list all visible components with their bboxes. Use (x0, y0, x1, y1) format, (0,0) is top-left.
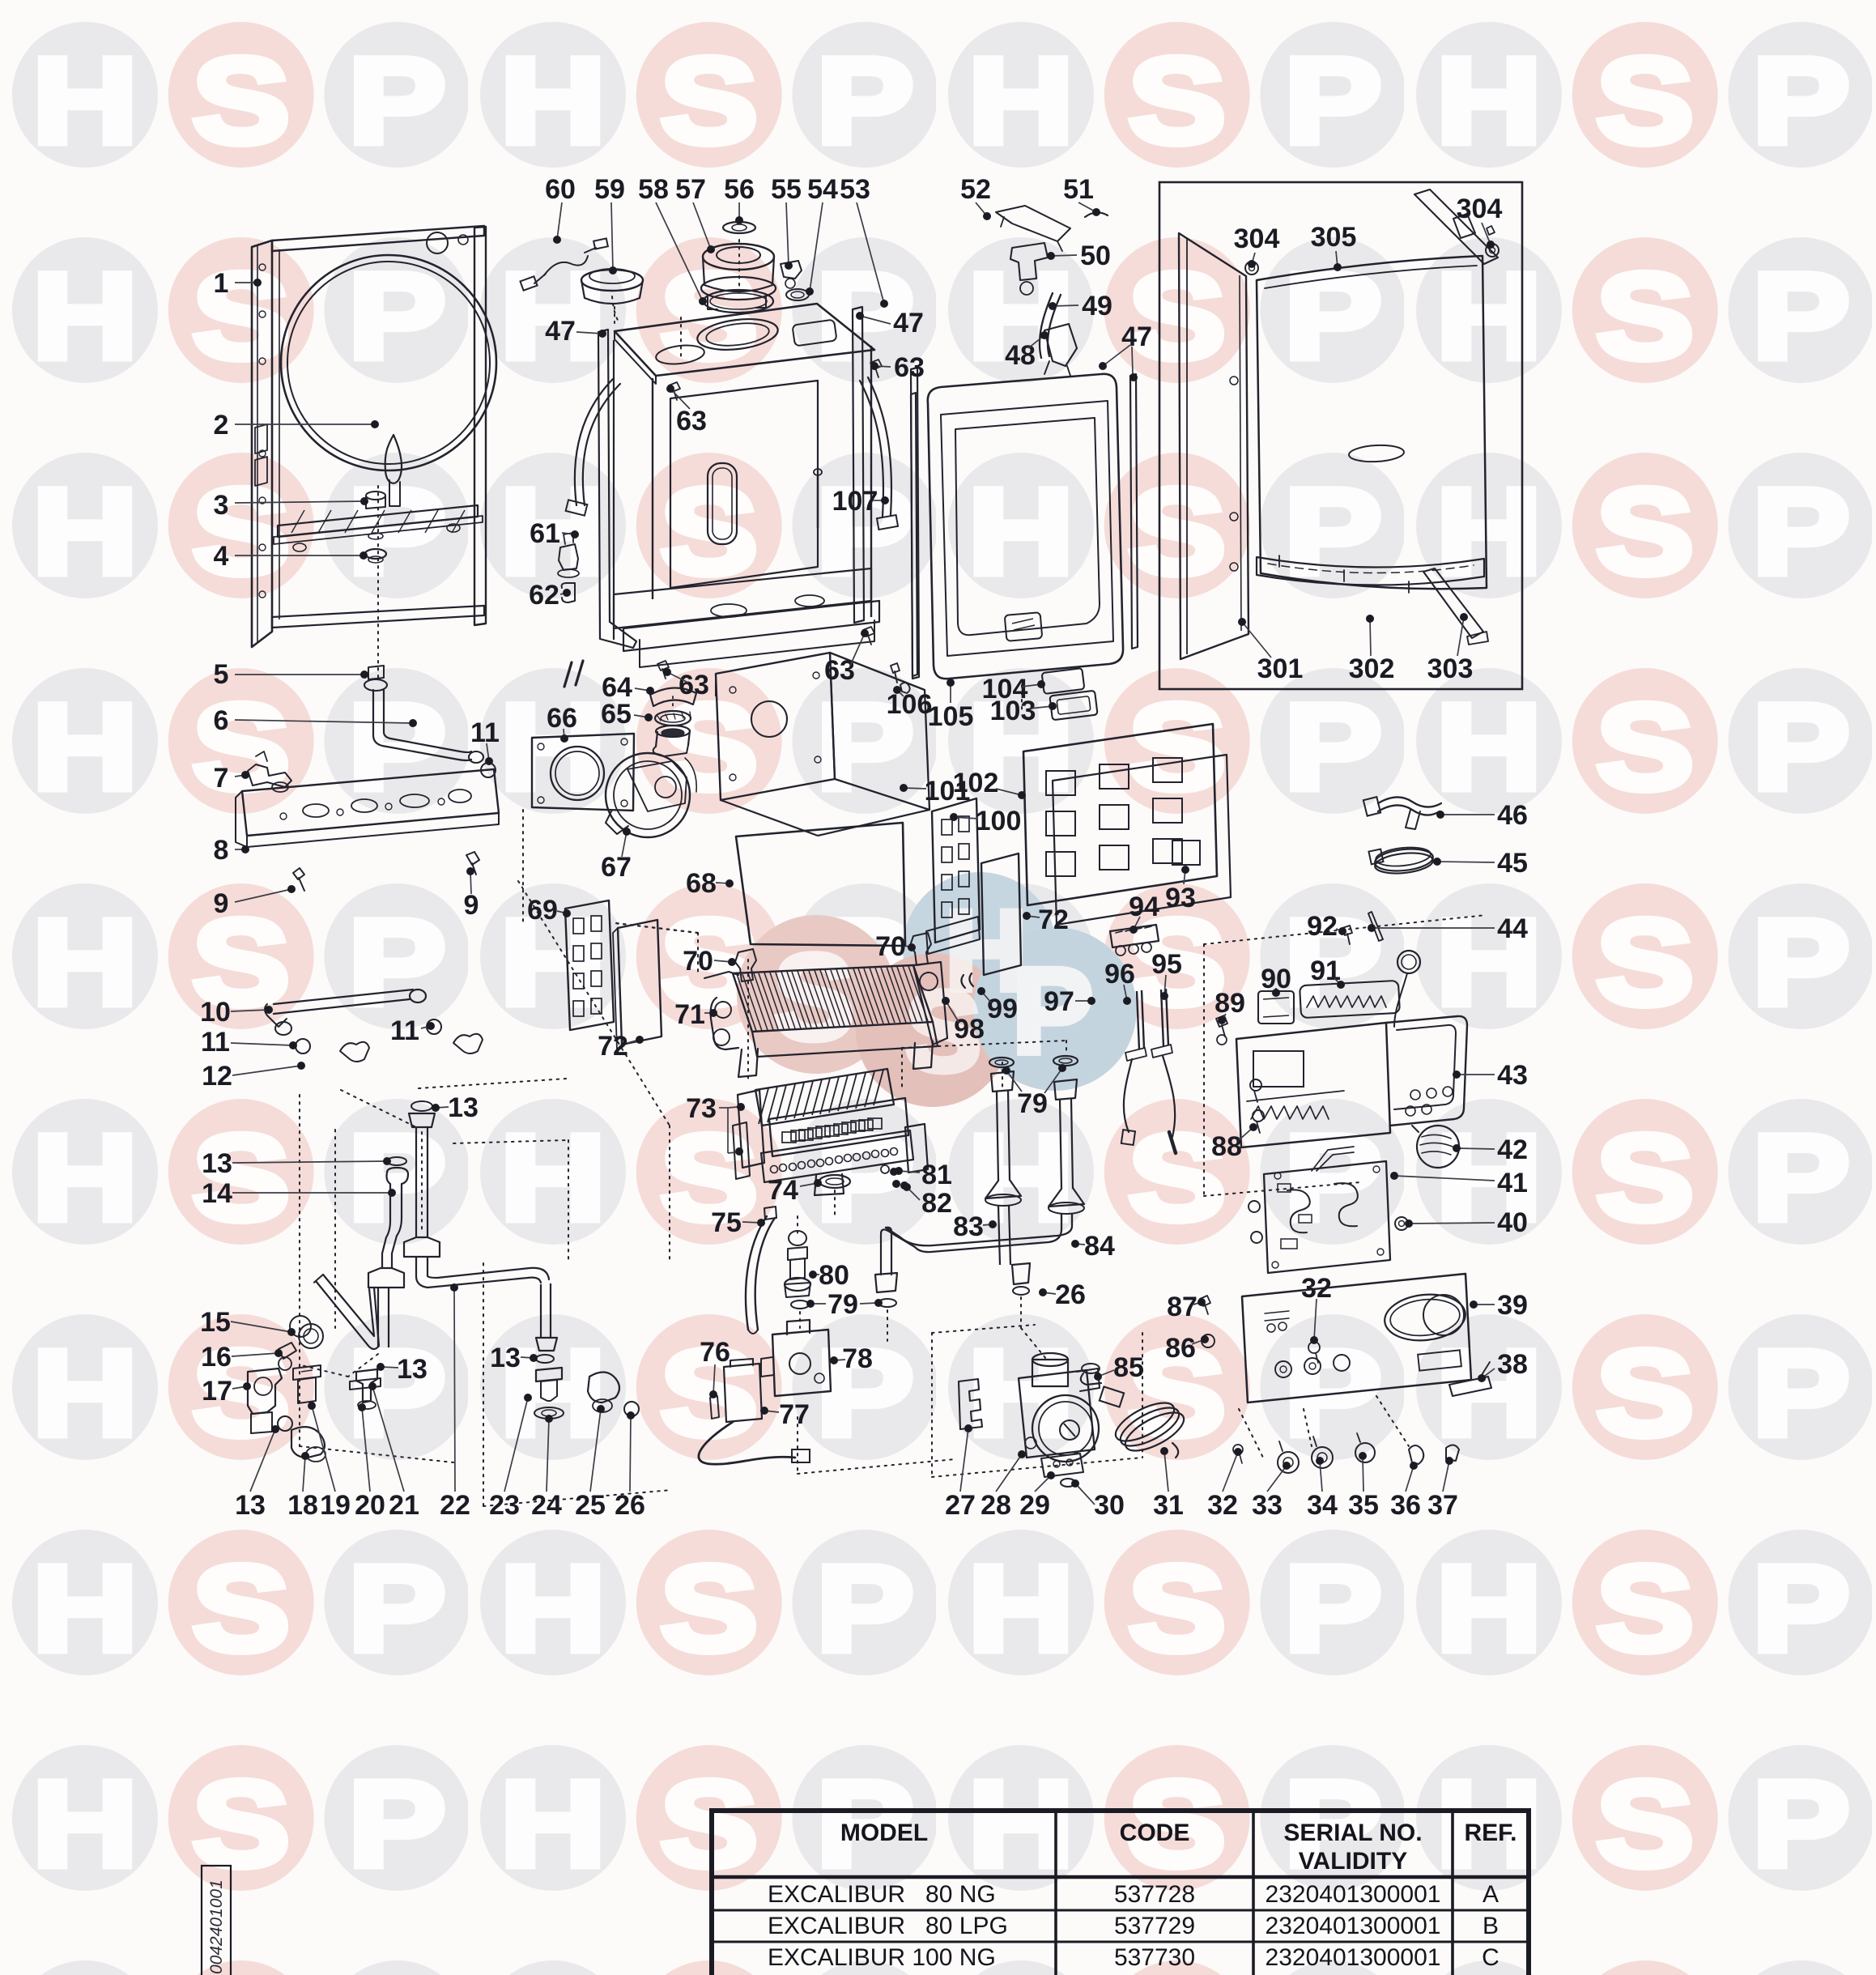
svg-text:50: 50 (1080, 240, 1111, 271)
svg-text:76: 76 (700, 1337, 730, 1368)
svg-text:79: 79 (1017, 1088, 1048, 1119)
svg-text:97: 97 (1044, 986, 1074, 1017)
svg-text:7: 7 (214, 763, 229, 794)
svg-text:79: 79 (827, 1289, 858, 1320)
svg-text:47: 47 (545, 316, 576, 347)
svg-text:22: 22 (440, 1490, 470, 1521)
svg-text:26: 26 (1055, 1279, 1086, 1310)
svg-text:81: 81 (921, 1160, 952, 1190)
svg-text:6: 6 (214, 705, 229, 736)
svg-text:31: 31 (1153, 1490, 1184, 1521)
svg-text:65: 65 (601, 699, 632, 730)
svg-text:80: 80 (819, 1260, 849, 1291)
svg-text:70: 70 (683, 946, 713, 977)
svg-text:4: 4 (214, 541, 229, 572)
svg-text:303: 303 (1427, 653, 1474, 684)
svg-text:96: 96 (1104, 959, 1135, 990)
svg-text:102: 102 (953, 768, 999, 798)
svg-text:106: 106 (887, 689, 933, 720)
svg-text:61: 61 (530, 518, 560, 549)
svg-text:2320401300001: 2320401300001 (1266, 1944, 1441, 1971)
svg-text:EXCALIBUR 80 LPG: EXCALIBUR 80 LPG (768, 1913, 1008, 1939)
svg-text:77: 77 (779, 1399, 810, 1430)
svg-text:60: 60 (545, 174, 576, 205)
svg-text:41: 41 (1497, 1168, 1528, 1198)
svg-text:27: 27 (945, 1490, 976, 1521)
svg-text:86: 86 (1165, 1333, 1196, 1364)
svg-text:8: 8 (214, 835, 229, 866)
svg-text:32: 32 (1207, 1490, 1238, 1521)
svg-text:62: 62 (529, 580, 559, 611)
svg-text:0042401001: 0042401001 (207, 1879, 226, 1974)
svg-text:304: 304 (1457, 194, 1503, 224)
svg-text:10: 10 (200, 997, 231, 1028)
svg-text:15: 15 (200, 1307, 231, 1338)
svg-text:B: B (1483, 1913, 1499, 1939)
svg-text:67: 67 (601, 852, 632, 883)
svg-text:44: 44 (1497, 913, 1528, 944)
svg-text:21: 21 (389, 1490, 419, 1521)
svg-text:34: 34 (1307, 1490, 1338, 1521)
svg-text:105: 105 (928, 701, 974, 732)
svg-text:13: 13 (397, 1354, 428, 1385)
svg-text:88: 88 (1211, 1131, 1242, 1162)
svg-text:26: 26 (615, 1490, 645, 1521)
svg-text:SERIAL NO.: SERIAL NO. (1283, 1820, 1422, 1846)
svg-text:MODEL: MODEL (840, 1820, 928, 1846)
svg-text:75: 75 (711, 1207, 742, 1238)
svg-text:85: 85 (1113, 1352, 1144, 1383)
svg-text:2320401300001: 2320401300001 (1266, 1913, 1441, 1939)
svg-text:55: 55 (771, 174, 802, 205)
svg-text:43: 43 (1497, 1060, 1528, 1091)
svg-text:69: 69 (527, 895, 558, 926)
svg-text:92: 92 (1307, 911, 1338, 942)
svg-text:74: 74 (768, 1175, 798, 1206)
svg-text:20: 20 (355, 1490, 385, 1521)
svg-text:S: S (773, 929, 854, 1065)
svg-text:71: 71 (674, 999, 705, 1030)
svg-text:57: 57 (675, 174, 706, 205)
svg-text:28: 28 (981, 1490, 1011, 1521)
svg-text:VALIDITY: VALIDITY (1299, 1848, 1407, 1875)
svg-text:73: 73 (686, 1093, 717, 1124)
svg-text:83: 83 (953, 1211, 984, 1242)
svg-text:95: 95 (1151, 949, 1182, 980)
svg-text:53: 53 (840, 174, 870, 205)
svg-text:EXCALIBUR 80 NG: EXCALIBUR 80 NG (768, 1881, 996, 1908)
svg-text:104: 104 (982, 674, 1028, 704)
svg-text:59: 59 (594, 174, 625, 205)
svg-text:40: 40 (1497, 1207, 1528, 1238)
svg-text:9: 9 (214, 888, 229, 919)
svg-text:46: 46 (1497, 800, 1528, 831)
svg-text:11: 11 (390, 1015, 419, 1046)
svg-text:11: 11 (470, 717, 500, 748)
svg-text:A: A (1483, 1881, 1499, 1908)
svg-text:11: 11 (201, 1027, 230, 1058)
svg-text:2: 2 (214, 410, 229, 441)
svg-text:CODE: CODE (1120, 1820, 1190, 1846)
svg-text:89: 89 (1215, 988, 1245, 1019)
svg-text:91: 91 (1310, 956, 1341, 986)
svg-text:58: 58 (638, 174, 669, 205)
svg-text:37: 37 (1427, 1490, 1458, 1521)
svg-text:42: 42 (1497, 1134, 1528, 1165)
svg-text:94: 94 (1129, 892, 1159, 922)
svg-text:17: 17 (202, 1376, 232, 1407)
svg-text:19: 19 (320, 1490, 351, 1521)
svg-text:72: 72 (598, 1031, 628, 1062)
svg-text:49: 49 (1082, 291, 1112, 321)
svg-text:REF.: REF. (1464, 1820, 1517, 1846)
svg-text:63: 63 (679, 670, 709, 700)
svg-text:107: 107 (832, 486, 878, 517)
svg-text:537729: 537729 (1114, 1913, 1195, 1939)
svg-text:66: 66 (547, 703, 577, 734)
svg-text:63: 63 (676, 406, 707, 436)
svg-text:72: 72 (1038, 904, 1069, 935)
svg-text:16: 16 (201, 1342, 232, 1373)
svg-text:1: 1 (214, 268, 229, 299)
svg-text:5: 5 (214, 659, 229, 690)
svg-text:98: 98 (954, 1014, 985, 1045)
svg-text:C: C (1482, 1944, 1500, 1971)
svg-text:39: 39 (1497, 1290, 1528, 1321)
svg-text:45: 45 (1497, 848, 1528, 879)
svg-text:EXCALIBUR 100 NG: EXCALIBUR 100 NG (768, 1944, 996, 1971)
svg-text:35: 35 (1348, 1490, 1379, 1521)
svg-text:48: 48 (1005, 340, 1036, 371)
svg-text:13: 13 (235, 1490, 266, 1521)
svg-text:84: 84 (1084, 1231, 1115, 1262)
svg-text:18: 18 (287, 1490, 318, 1521)
svg-text:38: 38 (1497, 1349, 1528, 1380)
svg-text:301: 301 (1257, 653, 1304, 684)
svg-text:68: 68 (686, 868, 717, 899)
svg-text:304: 304 (1234, 223, 1280, 254)
svg-text:29: 29 (1019, 1490, 1050, 1521)
svg-text:51: 51 (1063, 174, 1094, 205)
svg-text:47: 47 (893, 308, 924, 338)
svg-text:23: 23 (489, 1490, 520, 1521)
svg-text:30: 30 (1094, 1490, 1125, 1521)
svg-text:302: 302 (1349, 653, 1395, 684)
svg-text:33: 33 (1252, 1490, 1283, 1521)
svg-text:305: 305 (1311, 222, 1357, 253)
svg-text:56: 56 (724, 174, 755, 205)
svg-text:537730: 537730 (1114, 1944, 1195, 1971)
svg-text:99: 99 (987, 994, 1018, 1024)
svg-text:13: 13 (490, 1343, 521, 1373)
svg-text:13: 13 (448, 1092, 479, 1123)
svg-text:14: 14 (202, 1178, 232, 1209)
svg-text:3: 3 (214, 490, 229, 521)
svg-text:25: 25 (575, 1490, 606, 1521)
svg-text:70: 70 (875, 931, 906, 962)
svg-text:36: 36 (1390, 1490, 1421, 1521)
svg-text:78: 78 (842, 1343, 873, 1374)
svg-text:63: 63 (894, 352, 925, 383)
svg-text:63: 63 (824, 655, 855, 686)
svg-text:52: 52 (960, 174, 991, 205)
svg-text:93: 93 (1165, 883, 1196, 913)
svg-text:54: 54 (807, 174, 838, 205)
svg-text:537728: 537728 (1114, 1881, 1195, 1908)
svg-text:24: 24 (531, 1490, 562, 1521)
svg-text:2320401300001: 2320401300001 (1266, 1881, 1441, 1908)
svg-text:13: 13 (202, 1148, 232, 1179)
svg-text:87: 87 (1167, 1292, 1197, 1322)
svg-text:12: 12 (202, 1061, 232, 1092)
svg-text:9: 9 (464, 890, 479, 921)
svg-text:100: 100 (976, 806, 1022, 836)
svg-text:82: 82 (921, 1188, 952, 1219)
